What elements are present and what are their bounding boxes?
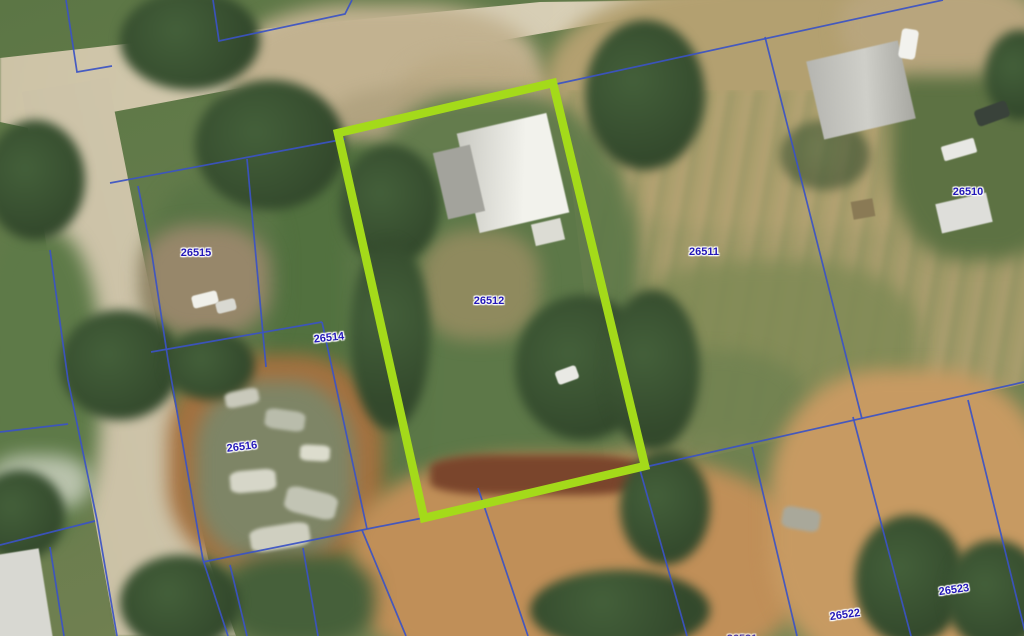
parcel-labels: 2651526514265122651126510265162652226523… <box>0 0 1024 636</box>
parcel-label-26523[interactable]: 26523 <box>938 582 970 598</box>
map-viewport[interactable]: 2651526514265122651126510265162652226523… <box>0 0 1024 636</box>
parcel-label-26522[interactable]: 26522 <box>829 607 861 623</box>
parcel-label-26511[interactable]: 26511 <box>689 246 719 258</box>
parcel-label-26516[interactable]: 26516 <box>226 439 258 455</box>
parcel-label-26515[interactable]: 26515 <box>181 247 212 259</box>
parcel-label-26510[interactable]: 26510 <box>953 186 984 198</box>
parcel-label-26512[interactable]: 26512 <box>474 295 505 307</box>
parcel-label-26514[interactable]: 26514 <box>313 330 345 345</box>
